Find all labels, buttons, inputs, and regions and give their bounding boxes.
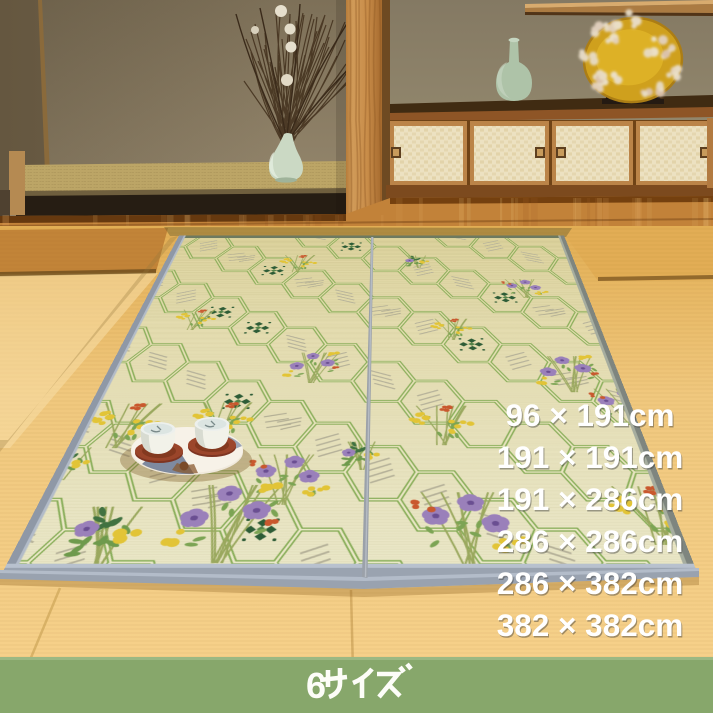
svg-text:286 × 382cm: 286 × 382cm bbox=[497, 565, 684, 601]
svg-text:6: 6 bbox=[306, 665, 326, 706]
svg-text:191 × 191cm: 191 × 191cm bbox=[497, 439, 684, 475]
svg-text:382 × 382cm: 382 × 382cm bbox=[497, 607, 684, 643]
svg-text:191 × 286cm: 191 × 286cm bbox=[497, 481, 684, 517]
svg-text:286 × 286cm: 286 × 286cm bbox=[497, 523, 684, 559]
svg-text:96 × 191cm: 96 × 191cm bbox=[505, 397, 674, 433]
